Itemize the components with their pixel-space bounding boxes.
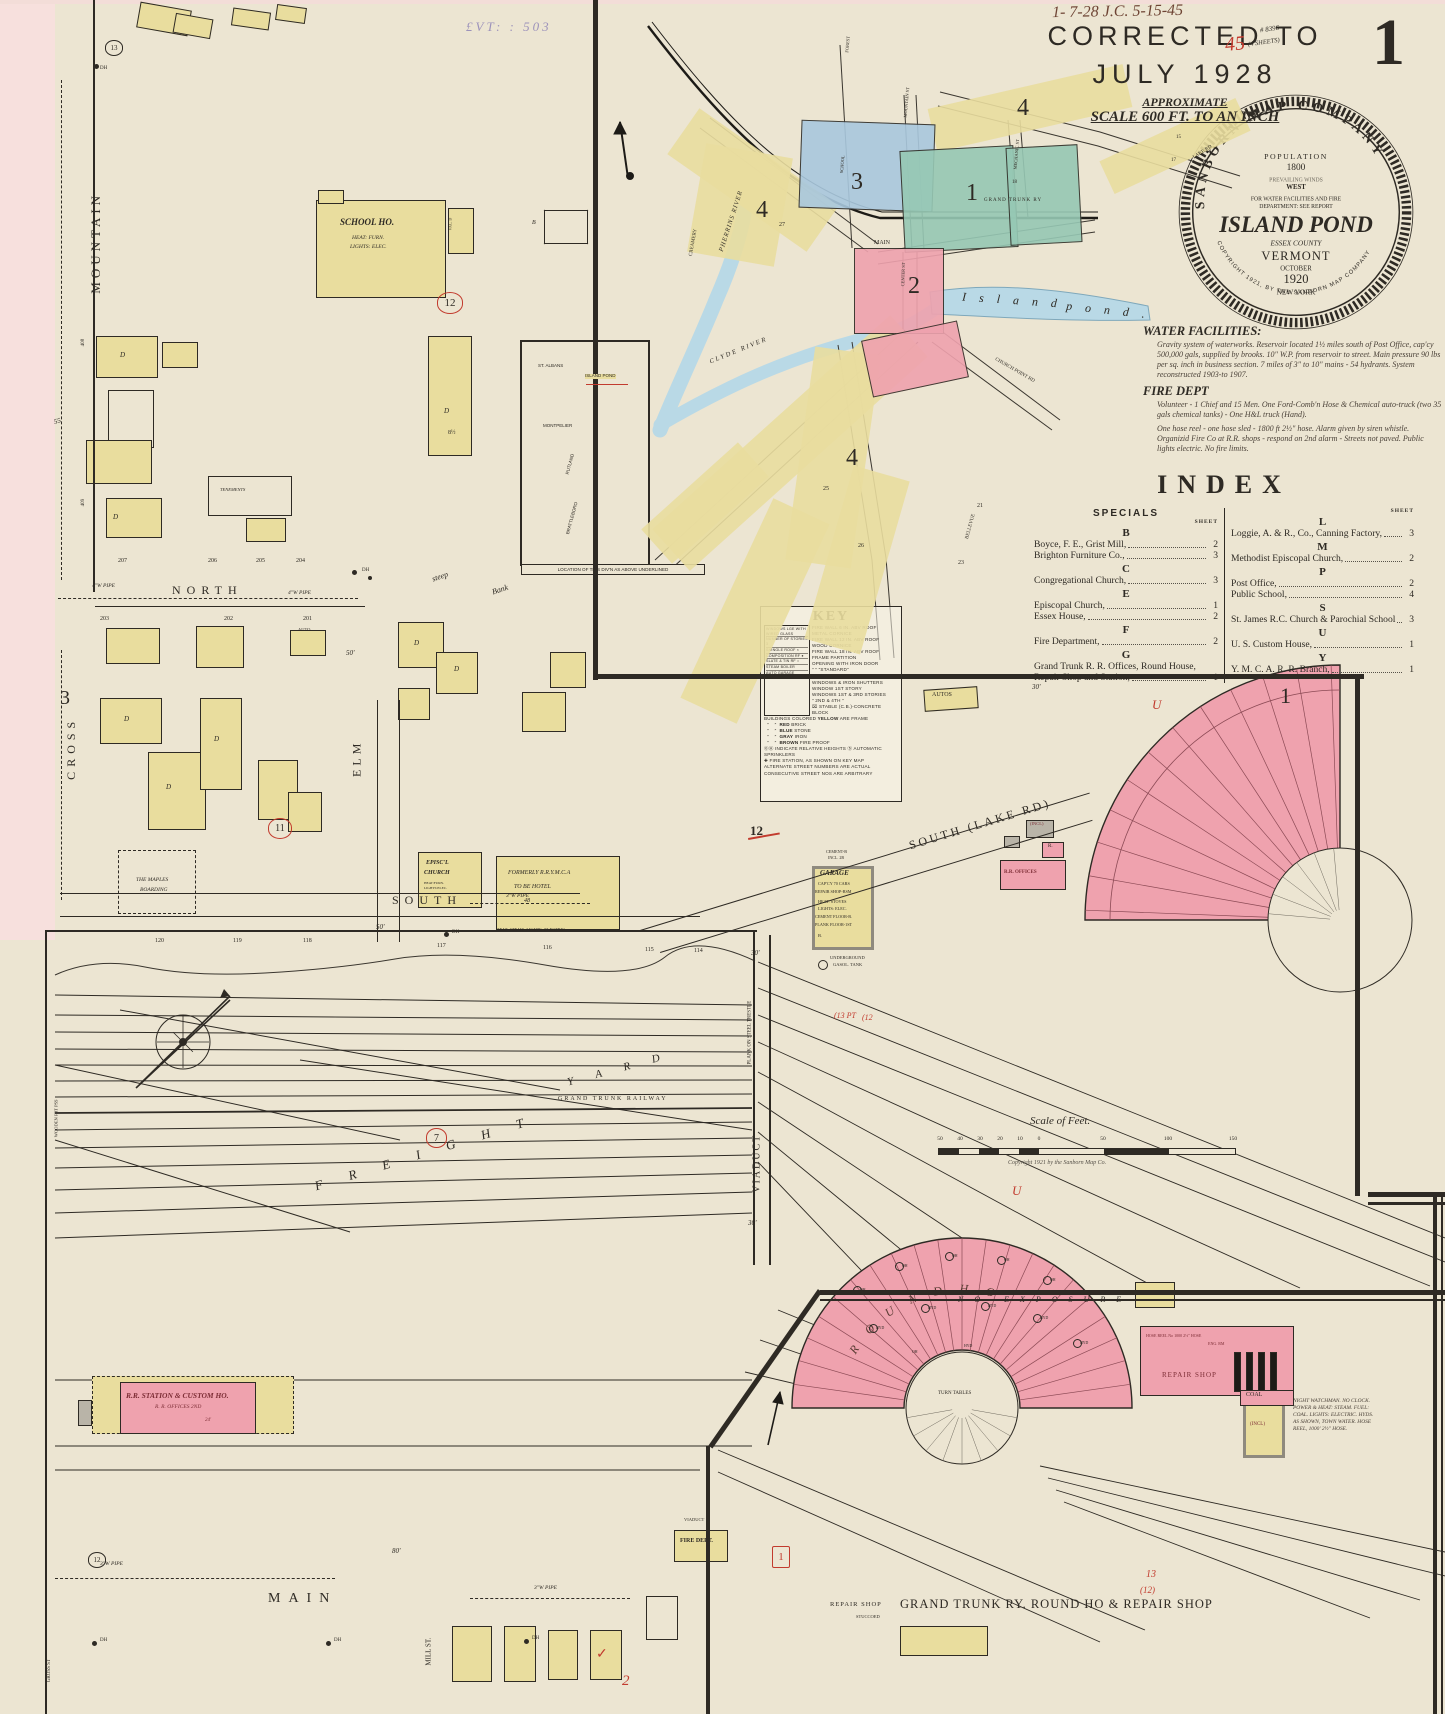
seal-state: VERMONT	[1261, 249, 1330, 263]
rr-station-custom-house: R.R. STATION & CUSTOM HO.	[126, 1392, 229, 1400]
map-line	[470, 1598, 630, 1599]
map-line	[377, 700, 378, 942]
seal-county: ESSEX COUNTY	[1270, 238, 1323, 247]
map-label: DH	[532, 1636, 539, 1641]
map-label: TO BE HOTEL	[514, 884, 551, 890]
map-label: 116	[543, 945, 552, 951]
map-label: GRAND TRUNK RY	[984, 198, 1042, 203]
map-label: ✓	[596, 1648, 608, 1663]
sheet-ref-mark: 1	[772, 1546, 790, 1568]
map-line	[46, 930, 48, 1714]
index-letter: M	[1231, 541, 1414, 553]
map-label: 1	[966, 181, 978, 206]
index-title: INDEX	[1028, 470, 1420, 500]
scale-number: 50	[1100, 1136, 1106, 1142]
map-label: 25	[823, 486, 829, 492]
map-label: 202	[224, 616, 233, 622]
north-arrow	[614, 122, 634, 180]
night-note-line: REEL, 1000' 2½" HOSE.	[1293, 1426, 1445, 1433]
building	[548, 1630, 578, 1680]
map-label: LIGHTS: ELEC.	[350, 245, 387, 251]
marker-dot	[94, 64, 99, 69]
index-entry: U. S. Custom House,1	[1231, 639, 1414, 650]
map-label: (INCL)	[1250, 1422, 1265, 1427]
index-right-column: SHEET LLoggie, A. & R., Co., Canning Fac…	[1224, 508, 1420, 683]
street-main: MAIN	[268, 1592, 337, 1607]
seal-report-note2: DEPARTMENT: SEE REPORT	[1259, 204, 1333, 210]
sheet-header: SHEET	[1034, 519, 1218, 525]
map-label: 45	[1224, 33, 1246, 56]
map-label: 2	[908, 274, 920, 299]
map-line	[770, 935, 772, 1265]
map-label: 201	[303, 616, 312, 622]
seal-report-note: FOR WATER FACILITIES AND FIRE	[1251, 197, 1342, 203]
night-note-line: COAL. LIGHTS: ELECTRIC. HYDS.	[1293, 1412, 1445, 1419]
map-label: 26	[858, 543, 864, 549]
marker-dot	[921, 1304, 930, 1313]
map-label: 8½	[448, 430, 456, 436]
map-label: 23	[958, 560, 964, 566]
map-label: PLANK ON STEEL TRESTLE	[747, 1001, 752, 1065]
turn-tables: TURN TABLES	[938, 1391, 971, 1396]
seal-population-label: POPULATION	[1264, 152, 1328, 161]
marker-dot	[981, 1302, 990, 1311]
corrected-date: JULY 1928	[1020, 60, 1350, 88]
map-label: (12	[862, 1014, 873, 1022]
building	[544, 210, 588, 244]
index-entry: Public School,4	[1231, 589, 1414, 600]
stamp: £VT: : 503	[466, 20, 552, 34]
index-letter: E	[1034, 588, 1218, 600]
map-label: APPROXIMATE	[1020, 96, 1350, 109]
roundhouse: R O U N D H O	[792, 1238, 1132, 1464]
rr-offices: R.R. OFFICES	[1004, 870, 1037, 875]
sheet-ref-12: 12	[437, 292, 463, 314]
sheet-ref-13: 13	[105, 40, 123, 56]
marker-dot	[945, 1252, 954, 1261]
map-line	[60, 893, 580, 894]
map-label: 1	[1280, 684, 1291, 707]
map-label: TENEMENTS	[220, 488, 245, 493]
map-label: 2	[622, 1674, 630, 1690]
map-label: HYD	[964, 1344, 972, 1348]
inset-label: ISLAND POND	[585, 374, 616, 379]
map-label: 115	[645, 947, 654, 953]
scale-number: 10	[1017, 1136, 1023, 1142]
street-viaduct: VIADUCT	[752, 1134, 763, 1193]
key-item: ⌧ STABLE (C.B.)-CONCRETE BLOCK	[812, 704, 898, 716]
map-label: D	[414, 640, 419, 647]
color-band	[854, 248, 944, 334]
map-label: 409	[81, 499, 86, 507]
sheet-ref-7: 7	[426, 1128, 447, 1148]
map-label: 3	[60, 688, 70, 709]
building	[504, 1626, 536, 1682]
map-line	[593, 0, 598, 680]
night-watchman-note: NIGHT WATCHMAN. NO CLOCK.POWER & HEAT: S…	[1293, 1398, 1445, 1433]
index-entry: Loggie, A. & R., Co., Canning Factory,3	[1231, 528, 1414, 539]
map-label: 30'	[748, 1220, 757, 1227]
handwritten-note: 1- 7-28 J.C. 5-15-45	[1052, 3, 1183, 22]
map-line	[58, 598, 358, 599]
map-label: WOODEN FRT PSS	[54, 1100, 59, 1138]
map-label: 203	[100, 616, 109, 622]
index-entry: Essex House,2	[1034, 611, 1218, 622]
map-label: DH	[452, 930, 459, 935]
map-line	[754, 930, 756, 1265]
key-colors: BUILDINGS COLORED YELLOW ARE FRAME ″ ″ R…	[764, 716, 898, 746]
map-label: CENTER ST	[901, 262, 907, 286]
key-note: ⓪Ⓐ INDICATE RELATIVE HEIGHTS Ⓢ AUTOMATIC…	[764, 746, 898, 758]
building	[646, 1596, 678, 1640]
scale-number: 150	[1229, 1136, 1237, 1142]
building	[452, 1626, 492, 1682]
marker-dot	[352, 570, 357, 575]
index-specials: SPECIALS	[1034, 508, 1218, 519]
building	[86, 440, 152, 484]
fire-dept-title: FIRE DEPT	[1143, 384, 1443, 399]
map-label: 17	[1171, 158, 1176, 163]
building	[288, 792, 322, 832]
map-label: 48	[524, 898, 530, 904]
street-south: SOUTH	[392, 894, 462, 907]
marker-dot	[444, 932, 449, 937]
compass-rose	[140, 989, 230, 1084]
map-label: D	[166, 784, 171, 791]
seal-year: 1920	[1283, 272, 1308, 286]
episcopal-church: EPISC'L	[426, 860, 449, 866]
building	[100, 698, 162, 744]
index-letter: L	[1231, 516, 1414, 528]
index-letter: F	[1034, 624, 1218, 636]
copyright-note: Copyright 1921 by the Sanborn Map Co.	[1008, 1160, 1106, 1166]
scale-number: 0	[1038, 1136, 1041, 1142]
map-label: GASOL. TANK	[833, 963, 862, 968]
map-label: 4"W PIPE	[92, 584, 115, 590]
map-label: AUTOS	[932, 692, 952, 698]
scale-number: 30	[977, 1136, 983, 1142]
marker-dot	[326, 1641, 331, 1646]
building	[208, 476, 292, 516]
marker-dot	[818, 960, 828, 970]
marker-dot	[853, 1286, 862, 1295]
night-note-line: POWER & HEAT: STEAM. FUEL:	[1293, 1405, 1445, 1412]
marker-dot	[92, 1641, 97, 1646]
index-entry: Episcopal Church,1	[1034, 600, 1218, 611]
scale-of-feet-label: Scale of Feet.	[1030, 1116, 1090, 1128]
marker-dot	[524, 1639, 529, 1644]
map-label: REPAIR SHOP	[830, 1602, 882, 1609]
building	[162, 342, 198, 368]
marker-dot	[869, 1324, 878, 1333]
map-label: HEAT: STOVES	[818, 900, 846, 904]
index-entry: Congregational Church,3	[1034, 575, 1218, 586]
school-house: SCHOOL HO.	[340, 218, 394, 227]
map-label: 120	[155, 938, 164, 944]
north-arrow-small	[768, 1392, 783, 1445]
grand-trunk-roundhouse-title: GRAND TRUNK RY. ROUND HO & REPAIR SHOP	[900, 1598, 1213, 1611]
map-label: CAP'CY 70 CARS	[818, 882, 850, 886]
map-label: 4	[846, 446, 858, 471]
map-label: 30'	[751, 950, 760, 957]
sheet-ref-mark: 12	[88, 1552, 106, 1568]
map-label: CHURCH	[424, 870, 450, 876]
map-label: D	[124, 716, 129, 723]
building	[200, 698, 242, 790]
map-label: D	[120, 352, 125, 359]
scale-number: 100	[1164, 1136, 1172, 1142]
map-label: HEAT: FURN.	[352, 236, 384, 242]
map-label: 4"W PIPE	[288, 591, 311, 597]
map-label: D	[444, 408, 449, 415]
map-label: (12)	[1140, 1586, 1155, 1595]
map-label: 15	[1176, 135, 1181, 140]
seal-office: NEW YORK	[1277, 287, 1316, 296]
scale-number: 20	[997, 1136, 1003, 1142]
street-mountain: MOUNTAIN	[89, 192, 103, 294]
building	[1270, 1352, 1277, 1392]
night-note-line: NIGHT WATCHMAN. NO CLOCK.	[1293, 1398, 1445, 1405]
fire-dept: FIRE DEPT.	[680, 1538, 713, 1544]
the-maples-boarding: THE MAPLES	[136, 878, 168, 884]
map-line	[95, 606, 365, 607]
grand-trunk-railway: GRAND TRUNK RAILWAY	[558, 1096, 668, 1102]
map-label: 50'	[346, 650, 355, 657]
map-label: D	[454, 666, 459, 673]
building	[1246, 1352, 1253, 1392]
map-label: 27	[779, 222, 785, 228]
index-letter: B	[1034, 527, 1218, 539]
fire-dept-text1: Volunteer - 1 Chief and 15 Men. One Ford…	[1157, 400, 1443, 420]
map-label: (INCL)	[1030, 822, 1044, 827]
map-label: 114	[694, 948, 703, 954]
map-label: DH	[100, 66, 107, 71]
map-label: VIADUCT	[684, 1518, 704, 1523]
building	[290, 630, 326, 656]
building	[1234, 1352, 1241, 1392]
map-label: 18	[1012, 180, 1017, 185]
marker-dot	[1043, 1276, 1052, 1285]
map-line	[820, 1299, 1445, 1301]
map-line	[706, 1446, 710, 1714]
map-label: AUTO	[298, 628, 310, 633]
building	[148, 752, 206, 830]
inset-label: MONTPELIER	[543, 424, 572, 429]
map-line	[47, 930, 757, 932]
map-label: DH	[100, 1638, 107, 1643]
map-line	[1433, 1192, 1437, 1714]
building	[550, 652, 586, 688]
building	[1042, 842, 1064, 858]
building	[106, 628, 160, 664]
map-label: OH	[912, 1350, 917, 1354]
map-label: LIGHTS:ELEC.	[424, 887, 447, 891]
seal-winds-value: WEST	[1286, 184, 1306, 191]
map-label: B	[532, 220, 536, 226]
inset-caption: LOCATION OF THIS DIV'N AS ABOVE UNDERLIN…	[521, 564, 705, 575]
building	[1135, 1282, 1175, 1308]
index-entry: Boyce, F. E., Grist Mill,2	[1034, 539, 1218, 550]
map-label: 50'	[376, 924, 385, 931]
map-label: 117	[437, 943, 446, 949]
street-cross: CROSS	[65, 717, 78, 780]
index-letter: P	[1231, 566, 1414, 578]
map-label: 119	[233, 938, 242, 944]
map-label: GROSS ST	[47, 1659, 52, 1682]
index-entry: Grand Trunk R. R. Offices, Round House,	[1034, 661, 1218, 672]
index-left-column: SPECIALS SHEET BBoyce, F. E., Grist Mill…	[1028, 508, 1224, 683]
marker-dot	[368, 576, 372, 580]
corrected-to: CORRECTED TO	[1020, 22, 1350, 50]
map-label: R.	[1048, 844, 1053, 849]
index-entry: Fire Department,2	[1034, 636, 1218, 647]
former-ymca-hotel: FORMERLY R.R.Y.M.C.A	[508, 870, 570, 876]
garage: GARAGE	[820, 870, 849, 877]
map-label: 4	[1017, 96, 1029, 121]
building	[196, 626, 244, 668]
map-label: COAL	[1246, 1392, 1262, 1398]
building	[96, 336, 158, 378]
map-line	[61, 80, 62, 580]
map-line	[60, 916, 700, 917]
key-item: WINDOWS 1ST & 3RD STORIES	[812, 692, 898, 698]
map-label: 12	[750, 824, 763, 838]
key-note: CONSECUTIVE STREET NOS ARE ARBITRARY	[764, 771, 898, 777]
map-line	[820, 1290, 1445, 1295]
map-label: 408	[81, 339, 86, 347]
map-label: CEMENT-B	[826, 850, 847, 854]
map-label: B.	[818, 934, 822, 939]
marker-dot	[895, 1262, 904, 1271]
building	[448, 208, 474, 254]
map-label: PLANK FLOOR-1ST	[815, 923, 852, 927]
map-line	[55, 1578, 335, 1579]
map-label: 24'	[205, 1418, 211, 1423]
key-bottom: ⓪Ⓐ INDICATE RELATIVE HEIGHTS Ⓢ AUTOMATIC…	[764, 746, 898, 776]
marker-dot	[997, 1256, 1006, 1265]
water-facilities-text: Gravity system of waterworks. Reservoir …	[1157, 340, 1443, 380]
building	[398, 688, 430, 720]
map-label: U	[1152, 698, 1161, 712]
map-label: CEMENT FLOOR-B.	[815, 915, 852, 919]
index-letter: Y	[1231, 652, 1414, 664]
map-label: HEAT: STEAM: LIGHTS: ELECTRIC	[496, 928, 565, 933]
map-label: R. R. OFFICES 2ND	[155, 1405, 201, 1411]
building	[522, 692, 566, 732]
map-label: DH	[334, 1638, 341, 1643]
map-label: 3	[851, 170, 863, 195]
map-label: 3"W PIPE	[534, 1586, 557, 1592]
map-label: SCALE 600 FT. TO AN INCH	[1020, 110, 1350, 126]
map-label: DH	[362, 568, 369, 573]
map-label: HOSE REEL No 1000 2½" HOSE	[1146, 1334, 1201, 1338]
index-letter: S	[1231, 602, 1414, 614]
map-label: UNDERGROUND	[830, 956, 865, 961]
repair-shop: REPAIR SHOP	[1162, 1372, 1217, 1379]
index-letter: C	[1034, 563, 1218, 575]
sanborn-map-sheet: R O U N D H O	[0, 0, 1445, 1714]
seal-population-value: 1800	[1287, 163, 1306, 173]
water-facilities-title: WATER FACILITIES:	[1143, 324, 1443, 339]
map-line	[94, 0, 96, 592]
map-label: MAIN	[874, 240, 890, 246]
map-label: (13 PT	[834, 1012, 856, 1020]
building	[246, 518, 286, 542]
building	[923, 686, 978, 712]
building	[1258, 1352, 1265, 1392]
index-letter: U	[1231, 627, 1414, 639]
sheet-ref-11: 11	[268, 818, 292, 839]
street-elm: ELM	[350, 740, 363, 777]
map-label: 204	[296, 558, 305, 564]
marker-dot	[1073, 1339, 1082, 1348]
map-label: 206	[208, 558, 217, 564]
building	[674, 1530, 728, 1562]
index-entry: Post Office,2	[1231, 578, 1414, 589]
map-label: STUCCOED	[856, 1615, 880, 1620]
map-label: 80'	[392, 1548, 401, 1555]
scale-bar-rule	[938, 1148, 1236, 1155]
sheet-header: SHEET	[1231, 508, 1414, 514]
night-note-line: AS SHOWN, TOWN WATER. HOSE	[1293, 1419, 1445, 1426]
map-label: 207	[118, 558, 127, 564]
map-label: 30'	[1032, 684, 1041, 691]
map-line	[1442, 1192, 1444, 1714]
building	[428, 336, 472, 456]
building	[1243, 1402, 1285, 1458]
index-entry: St. James R.C. Church & Parochial School…	[1231, 614, 1414, 625]
report-block: WATER FACILITIES: Gravity system of wate…	[1143, 324, 1443, 458]
roundhouse-fan-upper	[1085, 665, 1412, 992]
map-label: ENG. RM	[1208, 1342, 1224, 1346]
map-line	[470, 903, 590, 904]
map-label: 4	[756, 198, 768, 223]
map-label: REPAIR SHOP-BSM	[815, 890, 852, 894]
building	[318, 190, 344, 204]
seal-winds-label: PREVAILING WINDS	[1269, 178, 1323, 184]
marker-dot	[1033, 1314, 1042, 1323]
seal-city: ISLAND POND	[1218, 212, 1373, 237]
map-label: 21	[977, 503, 983, 509]
building	[900, 1626, 988, 1656]
map-line	[598, 674, 1364, 679]
map-label: U	[1012, 1184, 1021, 1198]
index-block: INDEX SPECIALS SHEET BBoyce, F. E., Gris…	[1028, 470, 1420, 683]
map-label: D	[113, 514, 118, 521]
map-label: 205	[256, 558, 265, 564]
map-label: 118	[303, 938, 312, 944]
building	[78, 1400, 92, 1426]
index-entry: Brighton Furniture Co.,3	[1034, 550, 1218, 561]
map-line	[586, 384, 628, 385]
inset-label: ST. ALBANS	[538, 364, 563, 369]
street-north: NORTH	[172, 584, 243, 597]
fire-dept-text2: One hose reel - one hose sled - 1800 ft …	[1157, 424, 1443, 454]
map-label: D	[214, 736, 219, 743]
map-label: BOARDING	[140, 888, 168, 894]
map-line	[1355, 674, 1360, 1196]
scale-number: 40	[957, 1136, 963, 1142]
map-label: INCL. 2B	[828, 856, 844, 860]
street-mill: MILL ST.	[425, 1638, 432, 1666]
map-label: VAC. D	[448, 218, 452, 231]
sheet-number: 1	[1372, 8, 1405, 77]
index-entry: Methodist Episcopal Church,2	[1231, 553, 1414, 564]
scale-number: 50	[937, 1136, 943, 1142]
map-label: LIGHTS: ELEC.	[818, 907, 847, 911]
map-label: 13	[1146, 1570, 1156, 1581]
index-letter: G	[1034, 649, 1218, 661]
